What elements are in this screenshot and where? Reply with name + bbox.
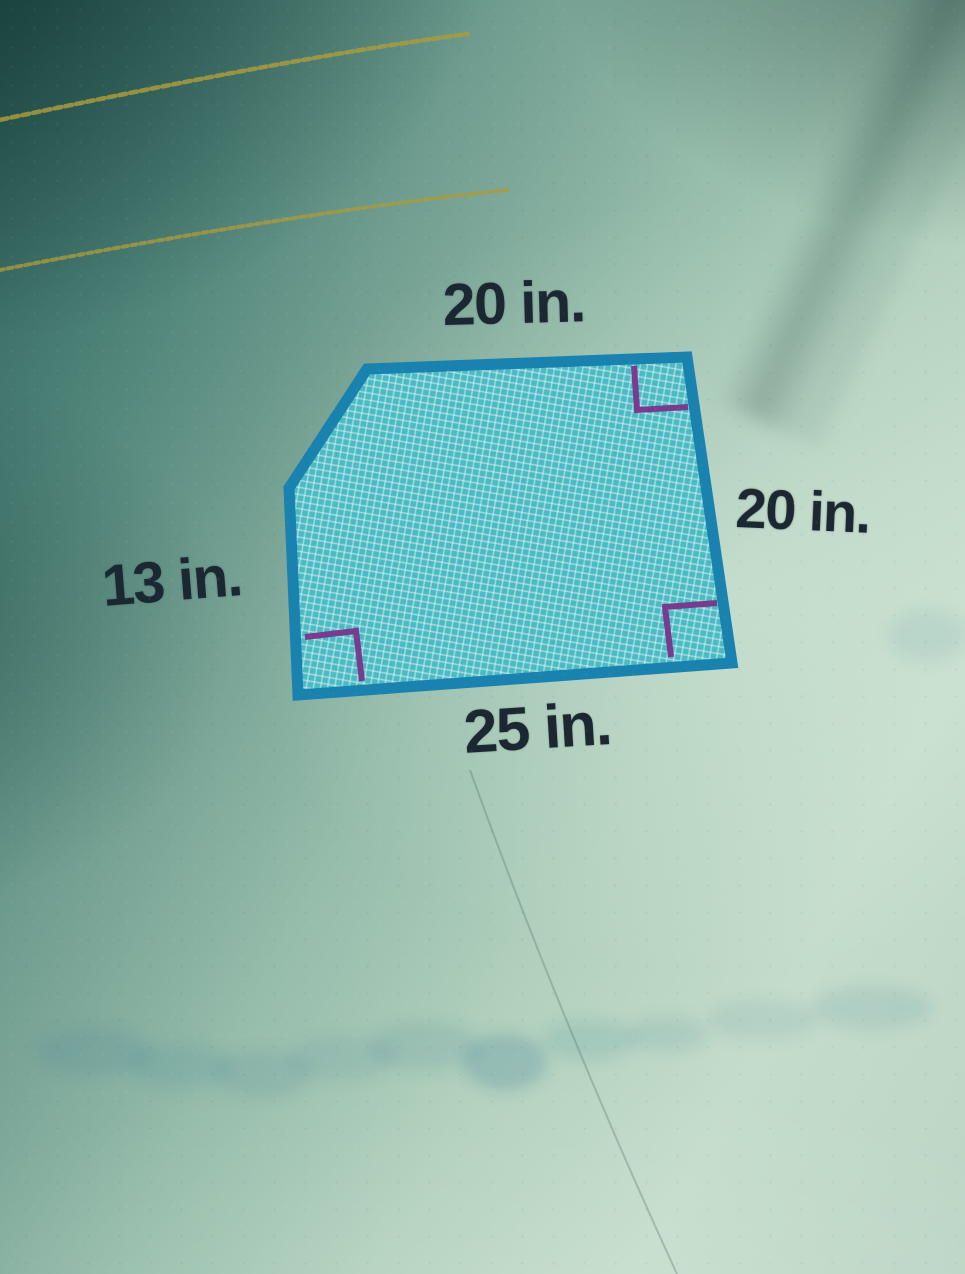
textbook-page-photo: 20 in. 20 in. 13 in. 25 in. [0,0,965,1274]
figure-canvas [0,0,965,1274]
ink-bleed-smudge [707,1000,817,1040]
measurement-label-bottom: 25 in. [462,693,612,763]
measurement-label-right: 20 in. [735,480,871,542]
ink-bleed-smudge [628,1016,708,1052]
ink-bleed-smudge [812,986,932,1030]
ink-bleed-smudge [463,1034,547,1090]
measurement-label-left: 13 in. [100,547,243,616]
ink-bleed-smudge [888,610,965,662]
measurement-label-top: 20 in. [442,272,585,335]
ink-bleed-smudge [542,1020,638,1060]
notebook-rule-line-2 [0,190,508,272]
notebook-rule-line-1 [0,34,468,122]
